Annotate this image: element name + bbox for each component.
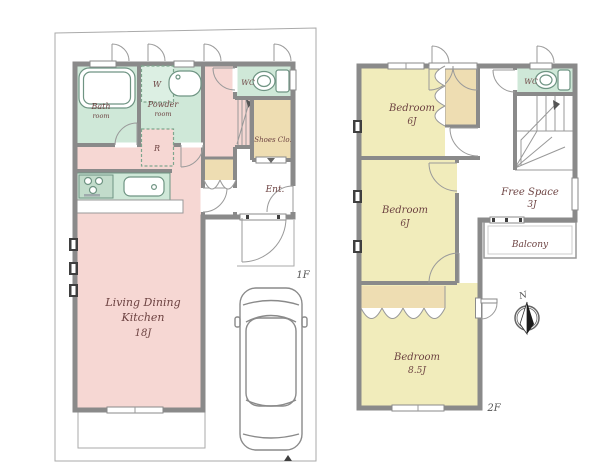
wc1-label: WC xyxy=(241,78,255,87)
bath-label-2: room xyxy=(92,112,109,120)
bedroom3-size-label: 8.5J xyxy=(408,366,427,376)
floorplan-canvas: N Bath room Powder room W R WC Shoes Clo… xyxy=(0,0,600,470)
balcony-label: Balcony xyxy=(511,240,549,250)
toilet-1f-icon xyxy=(253,70,289,92)
free-space-size-label: 3J xyxy=(527,200,538,210)
bedroom1-label: Bedroom xyxy=(388,103,435,114)
fridge-label: R xyxy=(153,144,160,153)
bedroom2-label: Bedroom xyxy=(381,205,428,216)
bedroom3-label: Bedroom xyxy=(393,352,440,363)
toilet-2f-icon xyxy=(536,70,571,90)
compass-icon: N xyxy=(515,290,539,334)
floorplan-page: N Bath room Powder room W R WC Shoes Clo… xyxy=(0,0,600,470)
stove-icon xyxy=(79,175,113,198)
ldk-label-1: Living Dining xyxy=(104,296,180,309)
shoes-closet-area xyxy=(252,98,293,160)
outswing-window-icons xyxy=(112,44,291,61)
wc2-label: WC xyxy=(524,77,538,86)
car-icon xyxy=(235,288,307,450)
washer-label: W xyxy=(153,80,162,89)
floor2-label: 2F xyxy=(486,403,501,414)
ldk-size-label: 18J xyxy=(135,328,153,339)
powder-label: Powder xyxy=(147,100,180,109)
bedroom2-size-label: 6J xyxy=(400,219,411,229)
shoes-closet-label: Shoes Clo. xyxy=(254,136,291,144)
bath-label: Bath xyxy=(90,102,110,111)
bedroom1-size-label: 6J xyxy=(407,117,418,127)
left-wall-window-marks xyxy=(69,238,78,297)
corridor-area xyxy=(203,64,235,158)
kitchen-counter xyxy=(75,169,183,213)
powder-label-2: room xyxy=(154,110,171,118)
hall-closet-area xyxy=(203,158,235,180)
compass-north-label: N xyxy=(517,290,529,302)
boundary-marker-icon xyxy=(284,455,292,461)
vanity-sink-icon xyxy=(169,71,201,96)
outswing-window-icons-2f xyxy=(432,46,554,63)
floor2-plan xyxy=(353,46,578,411)
bedroom1-closet-scallops xyxy=(435,66,445,126)
ldk-label-2: Kitchen xyxy=(121,311,165,324)
floor1-label: 1F xyxy=(296,270,310,281)
counter-ledge xyxy=(77,200,183,213)
kitchen-sink-icon xyxy=(124,177,164,196)
free-space-label: Free Space xyxy=(500,187,559,198)
terrace-outline xyxy=(78,412,205,448)
bedroom3-closet-area xyxy=(361,286,445,308)
entrance-label: Ent. xyxy=(265,185,285,195)
bedroom1-closet-area xyxy=(445,66,478,126)
stairs-2f-icon xyxy=(515,94,575,170)
